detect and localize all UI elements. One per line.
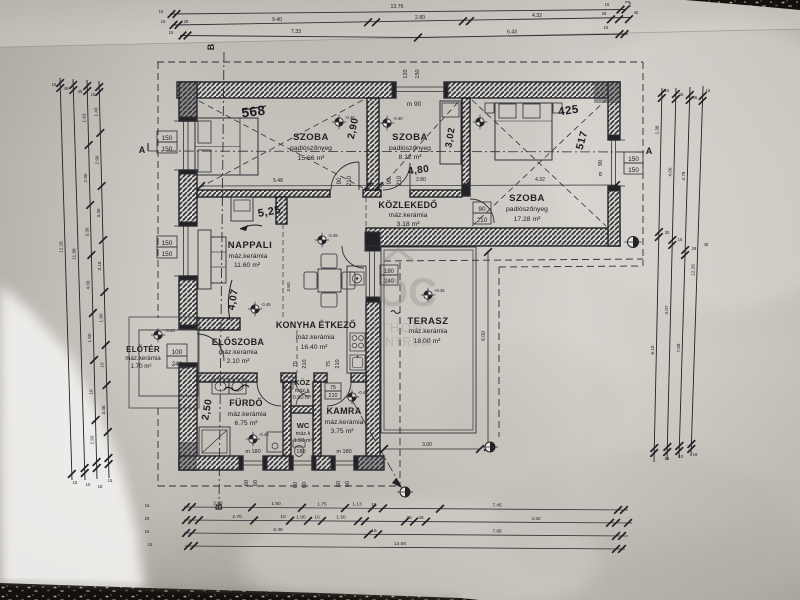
svg-text:210: 210 <box>397 175 403 186</box>
svg-text:KONYHA ÉTKEZŐ: KONYHA ÉTKEZŐ <box>276 319 356 330</box>
svg-text:5.48: 5.48 <box>273 178 283 184</box>
svg-text:28: 28 <box>184 19 189 24</box>
svg-text:12.26: 12.26 <box>59 241 64 253</box>
svg-text:3.60: 3.60 <box>286 282 292 292</box>
svg-text:ELŐTÉR: ELŐTÉR <box>126 345 160 354</box>
svg-text:45: 45 <box>418 515 424 521</box>
svg-text:FÜRDŐ: FÜRDŐ <box>229 397 263 408</box>
svg-text:150: 150 <box>415 69 421 78</box>
svg-text:15: 15 <box>678 237 683 242</box>
svg-text:90: 90 <box>387 177 393 184</box>
svg-text:2.70: 2.70 <box>232 514 242 520</box>
svg-text:12.26: 12.26 <box>691 264 696 276</box>
svg-text:150: 150 <box>162 251 173 258</box>
svg-text:7.95: 7.95 <box>492 529 502 535</box>
svg-text:8.12 m²: 8.12 m² <box>398 154 422 161</box>
svg-text:10: 10 <box>100 362 105 368</box>
svg-text:A: A <box>139 145 146 155</box>
svg-text:-0.45: -0.45 <box>358 390 368 395</box>
svg-text:60: 60 <box>244 480 250 486</box>
svg-text:+0.43: +0.43 <box>164 328 175 333</box>
svg-text:60: 60 <box>345 481 351 487</box>
svg-text:15: 15 <box>91 92 96 97</box>
svg-text:45: 45 <box>78 89 83 94</box>
svg-text:1.60: 1.60 <box>271 501 281 507</box>
svg-text:150: 150 <box>628 156 639 163</box>
svg-text:210: 210 <box>328 393 337 399</box>
svg-text:15: 15 <box>665 456 670 461</box>
svg-text:10: 10 <box>88 389 93 395</box>
svg-text:15: 15 <box>605 2 610 7</box>
svg-text:150: 150 <box>162 146 173 153</box>
svg-text:6.43: 6.43 <box>507 30 517 36</box>
svg-text:15: 15 <box>108 478 113 483</box>
svg-text:15: 15 <box>52 82 57 87</box>
svg-text:150: 150 <box>162 240 173 247</box>
svg-text:150: 150 <box>162 135 173 142</box>
svg-text:100: 100 <box>172 349 183 356</box>
svg-text:6.75 m²: 6.75 m² <box>234 420 258 427</box>
svg-text:B: B <box>206 43 216 50</box>
svg-text:2.80: 2.80 <box>415 15 425 21</box>
svg-text:30: 30 <box>665 230 670 235</box>
svg-text:máz.kerámia: máz.kerámia <box>296 334 335 341</box>
svg-text:-0.45: -0.45 <box>261 302 271 307</box>
svg-text:máz.k: máz.k <box>295 388 310 394</box>
svg-text:15: 15 <box>159 9 164 14</box>
svg-text:-0.45: -0.45 <box>328 233 338 238</box>
svg-text:6.00: 6.00 <box>481 331 487 341</box>
svg-text:4.32: 4.32 <box>535 177 545 183</box>
svg-text:15: 15 <box>665 88 670 93</box>
svg-text:1.13: 1.13 <box>352 502 362 508</box>
svg-text:210: 210 <box>335 359 341 368</box>
svg-text:1.70 m²: 1.70 m² <box>131 363 152 370</box>
svg-text:75: 75 <box>293 361 299 367</box>
svg-text:4.07: 4.07 <box>664 305 669 314</box>
svg-text:14.06: 14.06 <box>394 541 406 547</box>
svg-text:6.36: 6.36 <box>273 527 283 533</box>
svg-text:WC: WC <box>297 421 310 430</box>
svg-text:210: 210 <box>302 359 308 368</box>
svg-text:OC: OC <box>377 271 437 315</box>
svg-text:TTHON: TTHON <box>371 320 423 335</box>
svg-text:ELŐSZOBA: ELŐSZOBA <box>212 336 265 347</box>
svg-text:48: 48 <box>64 86 69 91</box>
svg-text:m 180: m 180 <box>245 449 260 455</box>
svg-text:10: 10 <box>679 454 684 459</box>
svg-text:25: 25 <box>145 516 150 521</box>
svg-text:A: A <box>646 146 653 156</box>
svg-text:90: 90 <box>478 206 486 213</box>
svg-text:17.28 m²: 17.28 m² <box>514 216 542 223</box>
svg-text:60: 60 <box>253 480 259 486</box>
svg-text:4.32: 4.32 <box>532 13 542 19</box>
svg-text:45: 45 <box>634 10 639 15</box>
svg-text:28: 28 <box>692 246 697 251</box>
svg-text:15: 15 <box>371 528 377 534</box>
svg-text:15: 15 <box>161 19 166 24</box>
svg-text:38: 38 <box>406 515 412 521</box>
svg-text:15: 15 <box>148 542 153 547</box>
svg-text:2.38: 2.38 <box>655 125 660 134</box>
svg-text:7.33: 7.33 <box>291 29 301 35</box>
svg-text:4.00: 4.00 <box>667 167 672 176</box>
svg-text:KÖZLEKEDŐ: KÖZLEKEDŐ <box>378 199 437 210</box>
svg-text:60: 60 <box>336 481 342 487</box>
svg-text:15: 15 <box>145 529 150 534</box>
svg-text:10: 10 <box>314 514 320 520</box>
svg-text:45: 45 <box>704 242 709 247</box>
svg-text:7.45: 7.45 <box>492 503 502 509</box>
svg-text:máz.kerámia: máz.kerámia <box>325 419 364 426</box>
svg-text:máz.kerámia: máz.kerámia <box>125 355 161 362</box>
svg-text:-0.49: -0.49 <box>259 432 269 437</box>
svg-text:15: 15 <box>706 88 711 93</box>
svg-text:15.66 m²: 15.66 m² <box>298 155 326 162</box>
svg-text:6.15: 6.15 <box>650 345 655 354</box>
svg-text:KÖZ: KÖZ <box>294 378 310 387</box>
svg-text:210: 210 <box>477 217 488 224</box>
svg-text:28: 28 <box>602 11 607 16</box>
svg-text:1.50: 1.50 <box>87 333 92 342</box>
svg-text:padlószőnyeg: padlószőnyeg <box>389 145 431 152</box>
svg-text:11.60 m²: 11.60 m² <box>234 262 261 269</box>
svg-text:0.90 m²: 0.90 m² <box>293 395 312 401</box>
svg-text:SZOBA: SZOBA <box>293 132 329 143</box>
svg-text:90: 90 <box>337 177 343 184</box>
svg-text:2.08: 2.08 <box>213 501 223 507</box>
svg-text:1.50: 1.50 <box>336 515 346 521</box>
svg-text:75: 75 <box>326 361 332 367</box>
svg-text:1.50 m²: 1.50 m² <box>294 438 313 444</box>
svg-text:3.18: 3.18 <box>97 261 102 270</box>
svg-text:3.00: 3.00 <box>422 442 432 448</box>
svg-text:-0.40: -0.40 <box>393 116 403 121</box>
svg-text:10: 10 <box>280 514 286 520</box>
svg-text:15: 15 <box>73 480 78 485</box>
svg-text:15: 15 <box>169 30 174 35</box>
svg-text:ENTRUM: ENTRUM <box>376 335 432 349</box>
svg-text:máz.k: máz.k <box>296 431 311 437</box>
svg-text:15: 15 <box>371 502 377 508</box>
svg-text:240: 240 <box>172 361 183 368</box>
svg-text:máz.kerámia: máz.kerámia <box>228 411 267 418</box>
svg-text:150: 150 <box>628 167 639 174</box>
svg-text:2.10 m²: 2.10 m² <box>226 358 250 365</box>
svg-text:9.40: 9.40 <box>272 17 282 23</box>
svg-text:15: 15 <box>604 25 609 30</box>
svg-text:210: 210 <box>347 175 353 186</box>
svg-text:1.75: 1.75 <box>317 501 327 507</box>
svg-text:m: m <box>598 171 604 176</box>
svg-text:SZOBA: SZOBA <box>509 193 545 204</box>
svg-text:7.08: 7.08 <box>676 343 681 352</box>
svg-text:120: 120 <box>403 69 409 78</box>
svg-text:máz.kerámia: máz.kerámia <box>219 349 258 356</box>
svg-text:3.75 m²: 3.75 m² <box>330 428 354 435</box>
svg-text:1.00: 1.00 <box>296 514 306 520</box>
svg-text:75: 75 <box>330 385 336 391</box>
svg-text:máz.kerámia: máz.kerámia <box>229 253 268 260</box>
svg-text:15: 15 <box>145 503 150 508</box>
svg-text:3.30: 3.30 <box>84 227 89 236</box>
svg-text:4.32: 4.32 <box>531 516 541 522</box>
svg-text:2.90: 2.90 <box>94 155 99 164</box>
svg-text:2.80: 2.80 <box>416 177 426 183</box>
svg-text:45: 45 <box>693 95 698 100</box>
svg-text:3.30: 3.30 <box>96 208 101 217</box>
svg-text:1.43: 1.43 <box>93 107 98 116</box>
svg-text:13.76: 13.76 <box>391 4 404 10</box>
svg-text:3.18 m²: 3.18 m² <box>396 221 420 228</box>
svg-text:1.63: 1.63 <box>81 113 86 122</box>
svg-text:60: 60 <box>302 482 308 488</box>
svg-text:padlószőnyeg: padlószőnyeg <box>290 145 332 152</box>
svg-text:3.48: 3.48 <box>101 405 106 414</box>
svg-text:568: 568 <box>241 103 267 121</box>
svg-text:180: 180 <box>296 449 305 455</box>
svg-text:90: 90 <box>598 160 604 166</box>
svg-text:2.90: 2.90 <box>83 173 88 182</box>
svg-text:48: 48 <box>679 92 684 97</box>
svg-text:padlószőnyeg: padlószőnyeg <box>506 206 548 213</box>
svg-text:11.98: 11.98 <box>72 248 77 260</box>
svg-text:4.76: 4.76 <box>681 171 686 180</box>
svg-text:16.40 m²: 16.40 m² <box>301 344 329 351</box>
svg-text:m 180: m 180 <box>336 449 351 455</box>
svg-text:18: 18 <box>98 484 103 489</box>
svg-text:2.50: 2.50 <box>90 435 95 444</box>
svg-text:NAPPALI: NAPPALI <box>228 240 273 251</box>
svg-text:18: 18 <box>693 452 698 457</box>
svg-text:m 90: m 90 <box>407 101 422 108</box>
svg-text:60: 60 <box>293 482 299 488</box>
svg-text:máz.kerámia: máz.kerámia <box>389 212 428 219</box>
svg-text:SZOBA: SZOBA <box>392 132 428 143</box>
svg-text:10: 10 <box>86 482 91 487</box>
svg-text:KAMRA: KAMRA <box>327 406 362 416</box>
svg-text:1.80: 1.80 <box>98 313 103 322</box>
svg-text:4.00: 4.00 <box>86 280 91 289</box>
